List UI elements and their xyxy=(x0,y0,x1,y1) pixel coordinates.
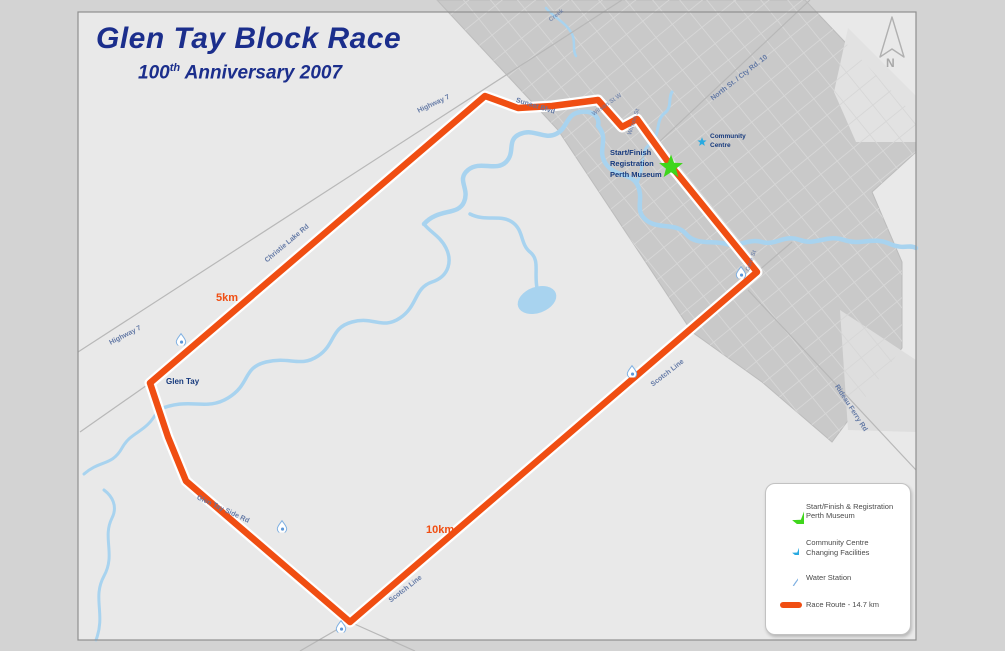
legend-label: Community Centre Changing Facilities xyxy=(806,538,869,557)
race-map-page: Glen Tay Block Race 100th Anniversary 20… xyxy=(0,0,1005,651)
legend-row-community-centre: Community Centre Changing Facilities xyxy=(776,538,902,557)
start-finish-line3: Perth Museum xyxy=(610,169,662,180)
legend-text-line: Start/Finish & Registration xyxy=(806,502,893,512)
start-finish-line2: Registration xyxy=(610,158,662,169)
map-subtitle: 100th Anniversary 2007 xyxy=(138,62,342,84)
legend-text-line: Water Station xyxy=(806,573,851,583)
glen-tay-label: Glen Tay xyxy=(166,377,199,386)
start-finish-star-icon xyxy=(776,498,806,524)
start-finish-label: Start/Finish Registration Perth Museum xyxy=(610,147,662,180)
legend-row-water-station: Water Station xyxy=(776,570,902,586)
legend-text-line: Perth Museum xyxy=(806,511,893,521)
start-finish-line1: Start/Finish xyxy=(610,147,662,158)
community-centre-star-icon xyxy=(776,540,806,555)
map-title: Glen Tay Block Race xyxy=(96,22,401,56)
legend-text-line: Changing Facilities xyxy=(806,548,869,558)
distance-marker-5km: 5km xyxy=(216,292,238,304)
community-centre-line2: Centre xyxy=(710,141,746,150)
anniversary-text: Anniversary 2007 xyxy=(180,62,342,83)
legend-label: Race Route - 14.7 km xyxy=(806,600,879,610)
legend-box: Start/Finish & Registration Perth Museum… xyxy=(765,483,911,635)
water-drop-icon xyxy=(776,570,806,586)
community-centre-line1: Community xyxy=(710,132,746,141)
legend-row-start-finish: Start/Finish & Registration Perth Museum xyxy=(776,498,902,524)
race-route-swatch-icon xyxy=(776,602,806,608)
anniversary-ordinal: th xyxy=(170,62,180,74)
legend-row-race-route: Race Route - 14.7 km xyxy=(776,600,902,610)
distance-marker-10km: 10km xyxy=(426,524,454,536)
legend-text-line: Community Centre xyxy=(806,538,869,548)
north-arrow-label: N xyxy=(886,56,895,70)
legend-label: Water Station xyxy=(806,573,851,583)
community-centre-label: Community Centre xyxy=(710,132,746,150)
legend-text-line: Race Route - 14.7 km xyxy=(806,600,879,610)
anniversary-number: 100 xyxy=(138,62,170,83)
legend-label: Start/Finish & Registration Perth Museum xyxy=(806,502,893,521)
